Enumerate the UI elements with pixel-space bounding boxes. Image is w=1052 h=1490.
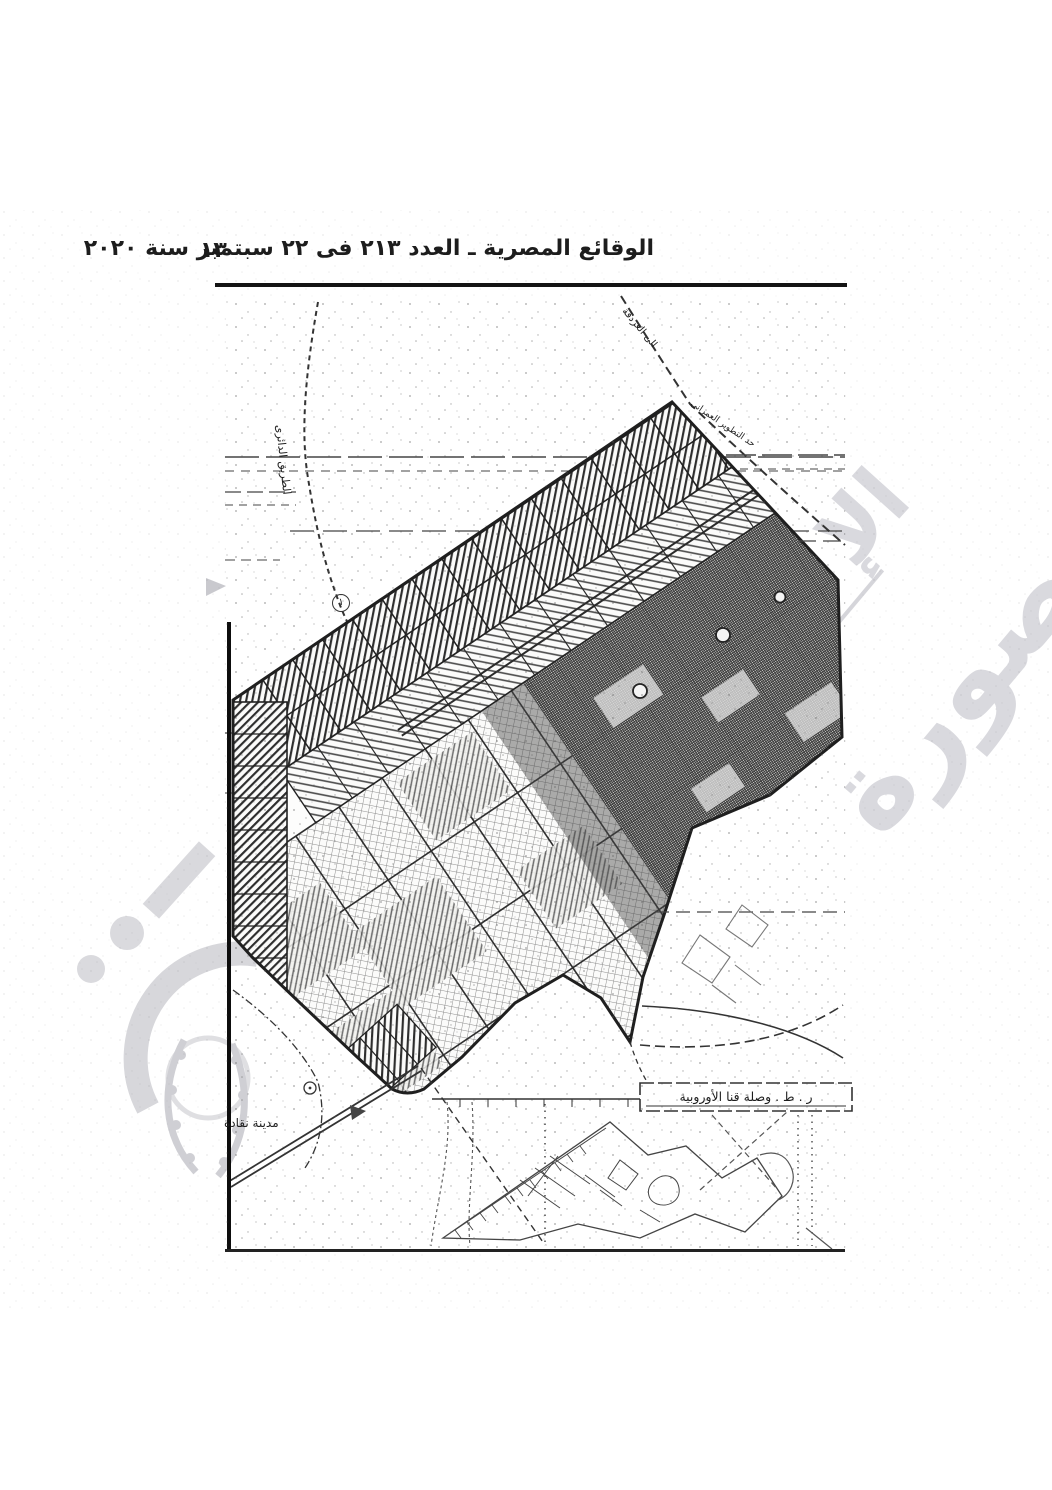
circled-marker-1: ١ bbox=[332, 594, 350, 612]
gazette-page: الإ صورة الوقائع المصرية ـ العدد ٢١٣ فى … bbox=[0, 0, 1052, 1490]
gazette-title: الوقائع المصرية ـ العدد ٢١٣ فى ٢٢ سبتمبر… bbox=[262, 236, 654, 261]
page-number: ١٣ bbox=[200, 238, 227, 263]
inset-title-box: ر . ط . وصلة قنا الأوروبية bbox=[642, 1085, 850, 1109]
header-rule bbox=[215, 283, 847, 287]
map-artwork bbox=[0, 0, 1052, 1490]
label-city-southwest: مدينة نقادة bbox=[224, 1116, 279, 1130]
